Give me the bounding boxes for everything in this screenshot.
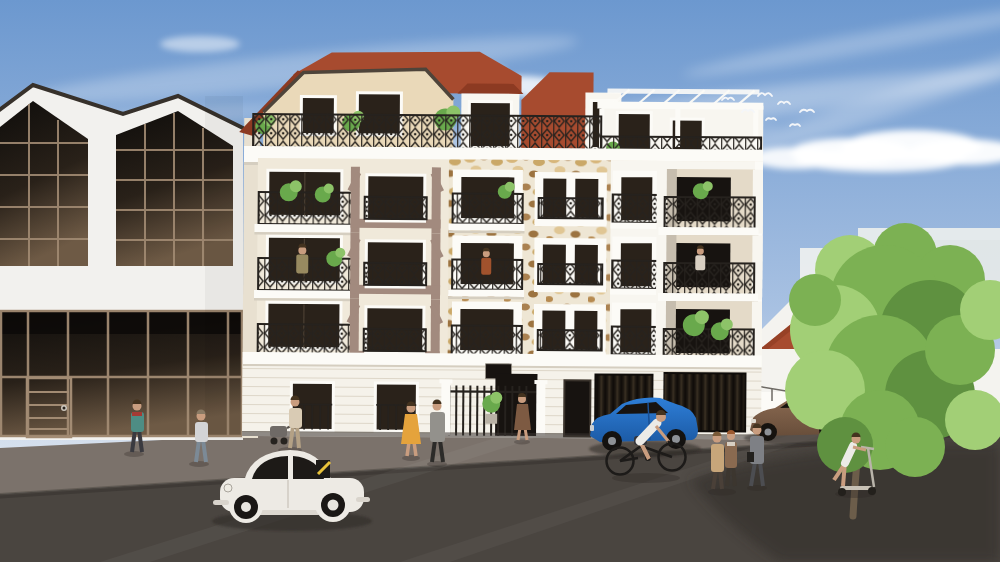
floor-3 xyxy=(254,166,762,238)
floor-2 xyxy=(254,232,762,304)
rendering-stage xyxy=(0,0,1000,562)
service-door xyxy=(564,380,590,436)
warehouse-building xyxy=(0,85,245,440)
architectural-rendering xyxy=(0,0,1000,562)
terrace-railing-left xyxy=(253,114,601,150)
apartment-building xyxy=(237,50,764,442)
